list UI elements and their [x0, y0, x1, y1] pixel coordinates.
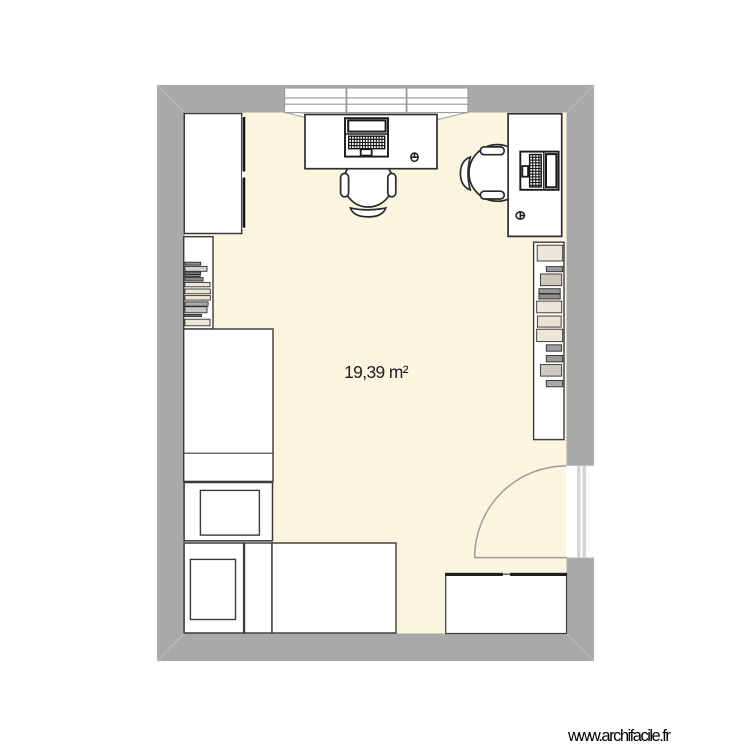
svg-text:www.archifacile.fr: www.archifacile.fr — [567, 727, 671, 745]
svg-text:19,39 m²: 19,39 m² — [344, 362, 409, 382]
